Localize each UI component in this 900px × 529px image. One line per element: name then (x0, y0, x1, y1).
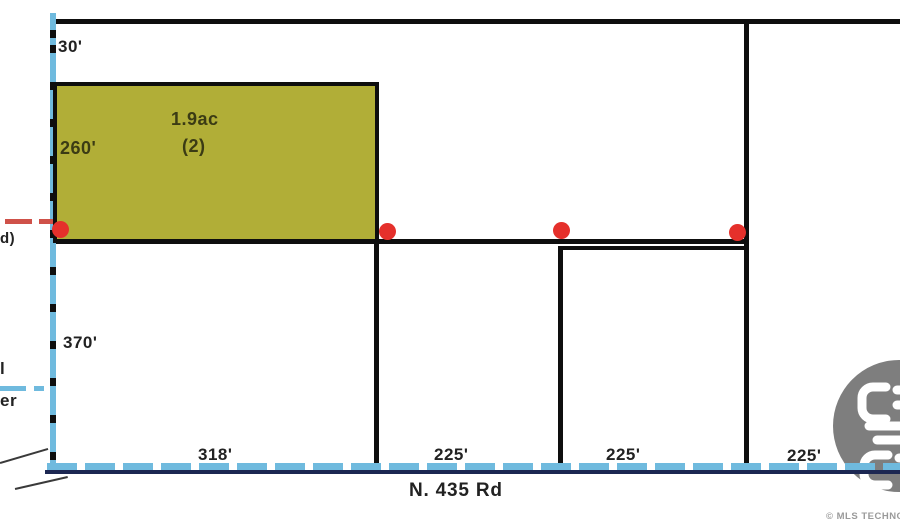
plat-map: 1.9ac (2) 30' 260' 370' 318' 225' 225' 2… (0, 0, 900, 529)
lot-divider-2 (558, 246, 563, 472)
dim-north-strip: 30' (58, 37, 82, 57)
red-marker-dot (729, 224, 746, 241)
copyright-text: © MLS TECHNO (826, 511, 900, 522)
north-boundary-line (50, 19, 900, 24)
water-pointer-dashed-line (0, 386, 44, 391)
parcel-lot-number-label: (2) (182, 136, 206, 157)
leader-line-2 (15, 476, 68, 490)
red-marker-dot (379, 223, 396, 240)
parcel-area-label: 1.9ac (171, 109, 219, 130)
dim-south-depth: 370' (63, 333, 97, 353)
road-name-label: N. 435 Rd (409, 480, 503, 502)
dim-lot1-frontage: 318' (198, 445, 232, 465)
red-marker-dot (553, 222, 570, 239)
dim-parcel2-depth: 260' (60, 138, 96, 159)
red-marker-dot (52, 221, 69, 238)
highlighted-parcel-lot2 (53, 82, 379, 243)
dim-lot2-frontage: 225' (434, 445, 468, 465)
east-boundary-line (744, 20, 749, 472)
dim-lot4-frontage: 225' (787, 446, 821, 466)
red-utility-dashed-line (5, 219, 53, 224)
red-utility-label-fragment: d) (0, 230, 15, 247)
dim-lot3-frontage: 225' (606, 445, 640, 465)
water-label-fragment-line2: er (0, 391, 17, 411)
water-label-fragment-line1: l (0, 359, 5, 379)
mid-boundary-line-offset (560, 246, 745, 250)
road-centerline (45, 470, 900, 474)
leader-line-1 (0, 448, 48, 464)
road-dashed-edge (47, 463, 900, 470)
